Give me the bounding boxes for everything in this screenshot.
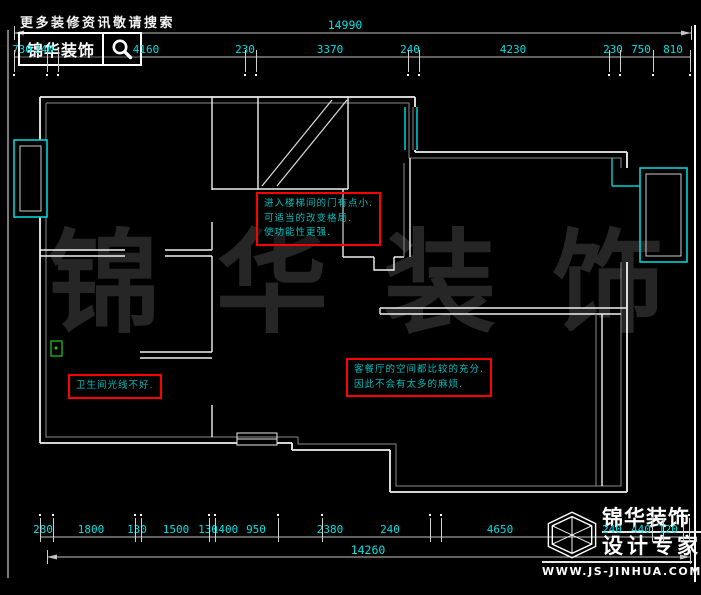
- annotation-line: 使功能性更强.: [264, 226, 373, 241]
- dimension-lines: [14, 33, 691, 557]
- footer-rule: [602, 531, 701, 533]
- right-bay-window-icon: [612, 158, 687, 262]
- balcony-door-sill: [237, 433, 277, 445]
- magnifier-icon: [104, 34, 140, 64]
- hexagon-cube-icon: [544, 510, 600, 560]
- footer-text: 锦华装饰 设计专家: [602, 506, 692, 558]
- footer-tagline: 设计专家: [602, 534, 692, 558]
- brand-search-box: 锦华装饰: [18, 32, 142, 66]
- entry-door-icon: [405, 107, 417, 150]
- dimension-arrows: [14, 31, 691, 560]
- annotation-note: 客餐厅的空间都比较的充分.因此不会有太多的麻烦.: [346, 358, 492, 397]
- footer-logo: 锦华装饰 设计专家 WWW.JS-JINHUA.COM: [540, 504, 692, 588]
- annotation-note: 卫生间光线不好.: [68, 374, 162, 399]
- sheet-frame: [8, 25, 695, 582]
- search-hint-text: 更多装修资讯敬请搜索: [20, 12, 175, 31]
- annotation-line: 可适当的改变格局.: [264, 212, 373, 227]
- annotation-line: 卫生间光线不好.: [76, 379, 154, 394]
- annotation-line: 客餐厅的空间都比较的充分.: [354, 363, 484, 378]
- floorplan-canvas: 锦华装饰: [0, 0, 701, 595]
- outer-walls: [40, 97, 627, 492]
- annotation-line: 进入楼梯间的门有点小.: [264, 197, 373, 212]
- footer-rule: [542, 561, 692, 563]
- interior-walls: [40, 97, 627, 486]
- outer-walls-inner-line: [46, 103, 621, 486]
- footer-company-name: 锦华装饰: [602, 506, 692, 530]
- annotation-note: 进入楼梯间的门有点小.可适当的改变格局.使功能性更强.: [256, 192, 381, 246]
- interior-walls-thin: [404, 163, 596, 486]
- footer-website: WWW.JS-JINHUA.COM: [542, 565, 701, 578]
- annotation-line: 因此不会有太多的麻烦.: [354, 378, 484, 393]
- stairs: [262, 100, 347, 186]
- bath-fixture-icon: [51, 341, 62, 356]
- brand-name: 锦华装饰: [20, 34, 102, 64]
- left-bay-window-icon: [14, 140, 47, 217]
